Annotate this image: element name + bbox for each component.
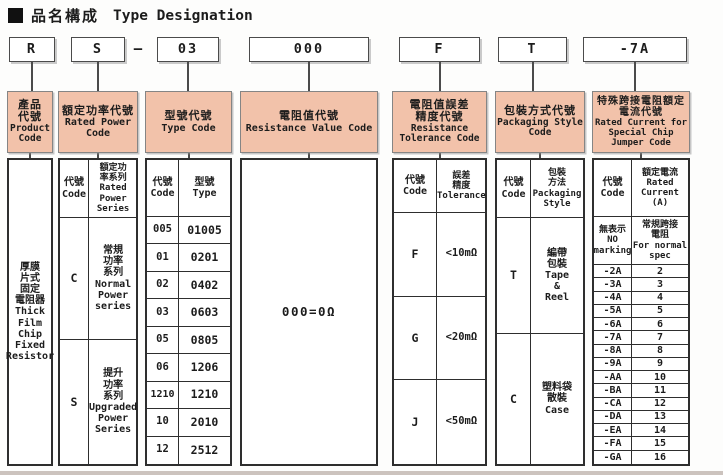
packaging-code-cell: T bbox=[510, 269, 517, 282]
section-title: 品名構成 Type Designation bbox=[8, 5, 253, 26]
type-code-cell: 1210 bbox=[150, 389, 174, 400]
jumper-current-cell: 12 bbox=[654, 398, 666, 409]
table-row: C bbox=[497, 334, 531, 464]
code-box-power: S bbox=[71, 37, 125, 62]
power-series-header-cell: 額定功 率系列 Rated Power Series bbox=[89, 160, 137, 218]
header-power-cjk: 額定功率代號 bbox=[62, 105, 134, 117]
section-title-en: Type Designation bbox=[113, 8, 253, 24]
header-jumper-cjk: 特殊跨接電阻額定 電流代號 bbox=[597, 96, 685, 118]
connector-line bbox=[187, 62, 189, 91]
table-row: 11 bbox=[632, 384, 688, 397]
table-row: 10 bbox=[632, 371, 688, 384]
table-row: 12 bbox=[632, 398, 688, 411]
power-code-header-cell: 代號 Code bbox=[60, 160, 89, 218]
product-description: 厚膜 片式 固定 電阻器 Thick Film Chip Fixed Resis… bbox=[6, 262, 54, 363]
header-type-cjk: 型號代號 bbox=[165, 110, 213, 122]
code-separator: — bbox=[128, 37, 148, 62]
table-row: 6 bbox=[632, 318, 688, 331]
table-row: -5A bbox=[594, 305, 632, 318]
jumper-current-header-cell: 額定電流 Rated Current (A) bbox=[632, 160, 688, 217]
tolerance-value-cell: <50mΩ bbox=[446, 416, 478, 428]
code-jumper-value: -7A bbox=[620, 42, 650, 57]
packaging-desc-cell: 編帶 包裝 Tape & Reel bbox=[545, 248, 569, 304]
jumper-current-cell: 15 bbox=[654, 438, 666, 449]
tolerance-header-cell: 誤差 精度 Tolerance bbox=[437, 160, 486, 213]
power-code-c: C bbox=[71, 272, 78, 285]
power-row-desc: 提升 功率 系列 Upgraded Power Series bbox=[89, 340, 137, 464]
tolerance-value-cell: <10mΩ bbox=[446, 248, 478, 260]
table-row: 4 bbox=[632, 292, 688, 305]
table-row: 01005 bbox=[179, 217, 230, 244]
jumper-code-cell: -FA bbox=[603, 438, 621, 449]
table-row: -BA bbox=[594, 384, 632, 397]
header-packaging-en: Packaging Style Code bbox=[497, 118, 583, 139]
jumper-current-label: 額定電流 Rated Current (A) bbox=[641, 168, 679, 208]
table-row: -GA bbox=[594, 451, 632, 464]
jumper-current-cell: 14 bbox=[654, 425, 666, 436]
table-row: -7A bbox=[594, 331, 632, 344]
code-product-value: R bbox=[27, 42, 37, 57]
connector-line bbox=[308, 62, 310, 91]
header-product-en: Product Code bbox=[10, 124, 50, 145]
jumper-current-cell: 6 bbox=[657, 319, 663, 330]
tolerance-code-header-cell: 代號 Code bbox=[394, 160, 437, 213]
table-row: 8 bbox=[632, 345, 688, 358]
table-row: 編帶 包裝 Tape & Reel bbox=[531, 218, 583, 334]
power-desc-upgraded: 提升 功率 系列 Upgraded Power Series bbox=[89, 368, 137, 435]
table-row: 01 bbox=[147, 244, 179, 271]
table-row: 06 bbox=[147, 354, 179, 381]
connector-line bbox=[634, 62, 636, 91]
type-value-cell: 0603 bbox=[191, 306, 219, 319]
jumper-no-marking-desc-cell: 常規跨接 電阻 For normal spec bbox=[632, 217, 688, 265]
table-row: 0805 bbox=[179, 327, 230, 354]
packaging-style-header-cell: 包裝 方法 Packaging Style bbox=[531, 160, 583, 218]
type-code-header-cell: 代號 Code bbox=[147, 160, 179, 217]
type-code-cell: 01 bbox=[156, 252, 169, 264]
header-resistance-tolerance-code: 電阻值誤差 精度代號 Resistance Tolerance Code bbox=[392, 91, 487, 153]
jumper-no-marking-cell: 無表示 NO marking bbox=[594, 217, 632, 265]
type-value-cell: 2010 bbox=[191, 416, 219, 429]
table-row: 03 bbox=[147, 299, 179, 326]
table-row: 9 bbox=[632, 358, 688, 371]
code-box-product: R bbox=[9, 37, 55, 62]
jumper-code-cell: -8A bbox=[603, 345, 621, 356]
header-resistance-en: Resistance Value Code bbox=[246, 123, 372, 134]
type-code-label: 代號 Code bbox=[150, 177, 174, 199]
tolerance-code-cell: G bbox=[412, 332, 419, 345]
resistance-value-text: 000=0Ω bbox=[282, 305, 336, 319]
jumper-current-cell: 8 bbox=[657, 345, 663, 356]
tolerance-code-cell: F bbox=[412, 248, 419, 261]
jumper-code-cell: -EA bbox=[603, 425, 621, 436]
type-value-cell: 1206 bbox=[191, 361, 219, 374]
jumper-current-table: 代號 Code 額定電流 Rated Current (A) 無表示 NO ma… bbox=[592, 158, 690, 466]
jumper-current-cell: 9 bbox=[657, 358, 663, 369]
table-row: 1206 bbox=[179, 354, 230, 381]
header-jumper-en: Rated Current for Special Chip Jumper Co… bbox=[595, 118, 687, 148]
header-jumper-code: 特殊跨接電阻額定 電流代號 Rated Current for Special … bbox=[592, 91, 690, 153]
code-separator-glyph: — bbox=[134, 42, 142, 58]
table-row: <50mΩ bbox=[437, 380, 486, 464]
header-rated-power-code: 額定功率代號 Rated Power Code bbox=[58, 91, 138, 153]
table-row: 2010 bbox=[179, 409, 230, 436]
code-resistance-value: 000 bbox=[294, 42, 324, 57]
table-row: <10mΩ bbox=[437, 213, 486, 297]
type-code-cell: 005 bbox=[153, 224, 172, 236]
packaging-style-label: 包裝 方法 Packaging Style bbox=[533, 168, 582, 208]
table-row: 0402 bbox=[179, 272, 230, 299]
table-row: 1210 bbox=[179, 382, 230, 409]
jumper-code-cell: -5A bbox=[603, 305, 621, 316]
tolerance-value-cell: <20mΩ bbox=[446, 332, 478, 344]
tolerance-label: 誤差 精度 Tolerance bbox=[437, 171, 486, 201]
table-row: 3 bbox=[632, 278, 688, 291]
type-value-cell: 0402 bbox=[191, 279, 219, 292]
header-power-en: Rated Power Code bbox=[65, 117, 131, 139]
code-box-tolerance: F bbox=[399, 37, 480, 62]
header-type-code: 型號代號 Type Code bbox=[145, 91, 232, 153]
header-tolerance-en: Resistance Tolerance Code bbox=[399, 124, 479, 145]
table-row: 12 bbox=[147, 437, 179, 464]
table-row: 2 bbox=[632, 265, 688, 278]
type-value-cell: 01005 bbox=[187, 224, 222, 237]
power-code-s: S bbox=[71, 396, 78, 409]
jumper-current-cell: 4 bbox=[657, 292, 663, 303]
jumper-code-cell: -CA bbox=[603, 398, 621, 409]
power-row-code: S bbox=[60, 340, 89, 464]
header-resistance-value-code: 電阻值代號 Resistance Value Code bbox=[240, 91, 378, 153]
tolerance-code-cell: J bbox=[412, 416, 419, 429]
table-row: -CA bbox=[594, 398, 632, 411]
header-product-code: 產品 代號 Product Code bbox=[7, 91, 53, 153]
table-row: T bbox=[497, 218, 531, 334]
table-row: J bbox=[394, 380, 437, 464]
code-box-packaging: T bbox=[498, 37, 567, 62]
section-title-cjk: 品名構成 bbox=[31, 5, 99, 26]
jumper-code-cell: -4A bbox=[603, 292, 621, 303]
jumper-code-cell: -6A bbox=[603, 319, 621, 330]
table-row: -4A bbox=[594, 292, 632, 305]
section-marker-icon bbox=[8, 8, 23, 23]
power-series-label: 額定功 率系列 Rated Power Series bbox=[97, 163, 130, 213]
table-row: 13 bbox=[632, 411, 688, 424]
jumper-current-cell: 7 bbox=[657, 332, 663, 343]
jumper-code-header-cell: 代號 Code bbox=[594, 160, 632, 217]
table-row: 05 bbox=[147, 327, 179, 354]
tolerance-table: 代號 Code 誤差 精度 Tolerance F <10mΩ G <20mΩ … bbox=[392, 158, 487, 466]
table-row: -9A bbox=[594, 358, 632, 371]
code-box-type: 03 bbox=[157, 37, 219, 62]
type-code-cell: 03 bbox=[156, 307, 169, 319]
tolerance-code-label: 代號 Code bbox=[403, 175, 427, 197]
table-row: -EA bbox=[594, 424, 632, 437]
power-row-code: C bbox=[60, 218, 89, 340]
code-box-resistance: 000 bbox=[249, 37, 369, 62]
table-row: 5 bbox=[632, 305, 688, 318]
jumper-current-cell: 11 bbox=[654, 385, 666, 396]
table-row: 15 bbox=[632, 437, 688, 450]
header-packaging-cjk: 包裝方式代號 bbox=[504, 105, 576, 117]
header-resistance-cjk: 電阻值代號 bbox=[279, 110, 339, 122]
type-code-cell: 02 bbox=[156, 279, 169, 291]
code-packaging-value: T bbox=[527, 42, 537, 57]
code-tolerance-value: F bbox=[434, 42, 444, 57]
jumper-no-marking-code: 無表示 NO marking bbox=[594, 225, 632, 255]
table-row: -2A bbox=[594, 265, 632, 278]
datasheet-page: { "title": {"marker": "■", "cjk": "品名構成"… bbox=[0, 0, 723, 475]
table-row: -3A bbox=[594, 278, 632, 291]
jumper-current-cell: 13 bbox=[654, 411, 666, 422]
table-row: 02 bbox=[147, 272, 179, 299]
table-row: -8A bbox=[594, 345, 632, 358]
connector-line bbox=[439, 62, 441, 91]
header-packaging-style-code: 包裝方式代號 Packaging Style Code bbox=[495, 91, 585, 153]
type-code-cell: 10 bbox=[156, 416, 169, 428]
table-row: -AA bbox=[594, 371, 632, 384]
page-edge-shadow bbox=[0, 471, 723, 475]
connector-line bbox=[31, 62, 33, 91]
type-code-cell: 06 bbox=[156, 362, 169, 374]
jumper-current-cell: 3 bbox=[657, 279, 663, 290]
jumper-current-cell: 2 bbox=[657, 266, 663, 277]
table-row: 005 bbox=[147, 217, 179, 244]
product-table: 厚膜 片式 固定 電阻器 Thick Film Chip Fixed Resis… bbox=[7, 158, 53, 466]
type-type-label: 型號 Type bbox=[192, 177, 216, 199]
header-product-cjk: 產品 代號 bbox=[18, 99, 42, 124]
packaging-code-header-cell: 代號 Code bbox=[497, 160, 531, 218]
type-value-cell: 0805 bbox=[191, 334, 219, 347]
type-code-cell: 05 bbox=[156, 334, 169, 346]
table-row: 10 bbox=[147, 409, 179, 436]
header-tolerance-cjk: 電阻值誤差 精度代號 bbox=[410, 99, 470, 124]
code-power-value: S bbox=[93, 42, 103, 57]
table-row: 0201 bbox=[179, 244, 230, 271]
type-value-cell: 0201 bbox=[191, 251, 219, 264]
jumper-code-cell: -2A bbox=[603, 266, 621, 277]
header-type-en: Type Code bbox=[161, 123, 215, 134]
jumper-code-cell: -7A bbox=[603, 332, 621, 343]
jumper-current-cell: 10 bbox=[654, 372, 666, 383]
packaging-desc-cell: 塑料袋 散裝 Case bbox=[542, 382, 572, 416]
jumper-current-cell: 5 bbox=[657, 305, 663, 316]
table-row: <20mΩ bbox=[437, 297, 486, 381]
jumper-code-cell: -9A bbox=[603, 358, 621, 369]
packaging-code-label: 代號 Code bbox=[501, 177, 525, 199]
rated-power-table: 代號 Code 額定功 率系列 Rated Power Series C 常規 … bbox=[58, 158, 138, 466]
power-row-desc: 常規 功率 系列 Normal Power series bbox=[89, 218, 137, 340]
type-value-cell: 2512 bbox=[191, 444, 219, 457]
table-row: 1210 bbox=[147, 382, 179, 409]
table-row: -DA bbox=[594, 411, 632, 424]
type-value-cell: 1210 bbox=[191, 388, 219, 401]
table-row: F bbox=[394, 213, 437, 297]
type-header-cell: 型號 Type bbox=[179, 160, 230, 217]
resistance-value-table: 000=0Ω bbox=[240, 158, 378, 466]
code-type-value: 03 bbox=[178, 42, 198, 57]
jumper-code-cell: -BA bbox=[603, 385, 621, 396]
jumper-code-cell: -AA bbox=[603, 372, 621, 383]
code-box-jumper: -7A bbox=[583, 37, 687, 62]
power-code-label: 代號 Code bbox=[62, 177, 86, 199]
jumper-code-cell: -GA bbox=[603, 452, 621, 463]
table-row: 14 bbox=[632, 424, 688, 437]
table-row: 7 bbox=[632, 331, 688, 344]
table-row: G bbox=[394, 297, 437, 381]
power-desc-normal: 常規 功率 系列 Normal Power series bbox=[95, 245, 131, 312]
connector-line bbox=[97, 62, 99, 91]
type-table: 代號 Code 型號 Type 005 01005 01 0201 02 040… bbox=[145, 158, 232, 466]
type-code-cell: 12 bbox=[156, 444, 169, 456]
connector-line bbox=[532, 62, 534, 91]
table-row: -FA bbox=[594, 437, 632, 450]
table-row: 塑料袋 散裝 Case bbox=[531, 334, 583, 464]
table-row: 0603 bbox=[179, 299, 230, 326]
table-row: 2512 bbox=[179, 437, 230, 464]
jumper-no-marking-desc: 常規跨接 電阻 For normal spec bbox=[633, 220, 687, 260]
jumper-code-cell: -DA bbox=[603, 411, 621, 422]
table-row: -6A bbox=[594, 318, 632, 331]
jumper-current-cell: 16 bbox=[654, 452, 666, 463]
jumper-code-cell: -3A bbox=[603, 279, 621, 290]
table-row: 16 bbox=[632, 451, 688, 464]
packaging-table: 代號 Code 包裝 方法 Packaging Style T 編帶 包裝 Ta… bbox=[495, 158, 585, 466]
jumper-code-label: 代號 Code bbox=[600, 177, 624, 199]
packaging-code-cell: C bbox=[510, 393, 517, 406]
